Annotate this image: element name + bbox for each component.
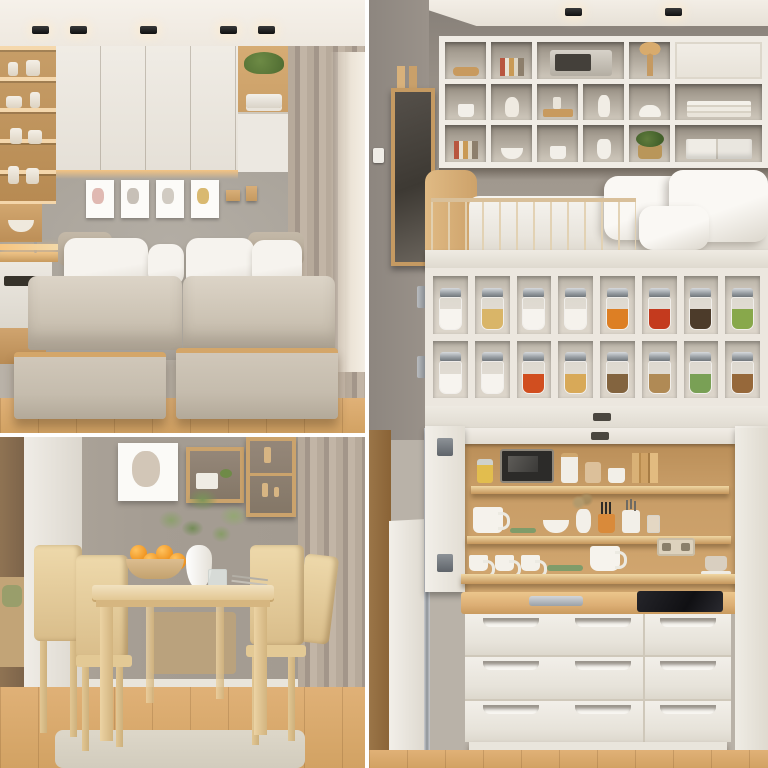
microwave-item [550,50,612,76]
spice-cell [600,276,635,334]
drawer-handle [575,661,631,670]
wood-bowl-item [453,67,479,76]
jar-contents [482,374,503,393]
jar-contents [607,309,628,328]
jar-lid [440,288,461,297]
spice-cell [558,276,593,334]
drawer-column-left [465,614,643,742]
bowl-white-item [501,148,523,159]
jar-lid [690,352,711,361]
spice-cell [475,276,510,334]
open-door-left-lower [389,519,427,768]
photo-kitchen-unit [369,0,768,768]
jar-contents [649,309,670,328]
counter-board [461,574,737,584]
jar-lid [690,288,711,297]
side-wall-wood [369,430,391,768]
cup-and-saucer [705,556,727,571]
drawer-face [465,657,643,698]
spice-jar [522,288,545,330]
folded-towels [246,94,282,108]
cubby-lower-door [238,112,290,172]
shelf-board [471,486,729,494]
ceiling-light [665,8,682,16]
cubby-cell [675,125,762,162]
jar-glass [439,297,462,330]
jar-glass [439,361,462,394]
mug [469,555,488,571]
spice-cell [642,341,677,399]
open-door-right-lower [735,428,768,768]
latch [591,432,609,440]
spice-cell [517,341,552,399]
open-door-left [425,426,465,592]
knife-jar [622,510,640,533]
plant-item [638,145,662,159]
dish-green [510,528,536,533]
pitcher-item [597,139,611,159]
drawer-chest [465,614,731,742]
loft-pillow [639,206,709,250]
jar-glass [689,361,712,394]
jar-glass [606,297,629,330]
counter-items [463,534,653,574]
cubby-cell [675,42,762,79]
loft-railing [431,198,636,252]
latch [593,413,611,421]
jar-contents [649,374,670,393]
cubby-cell [675,84,762,121]
mug-big [473,507,503,533]
photo-bedroom [0,0,365,433]
shelf-figurine [26,60,40,76]
ceiling-light [565,8,582,16]
jar-glass [522,361,545,394]
jar-lid [607,288,628,297]
chair-leg [288,657,295,741]
rack-bottom-band [425,406,768,428]
wall-shelf-box [226,190,240,201]
table-leg [254,607,267,735]
jar-lid [649,352,670,361]
drawer-face [465,614,643,655]
books-item [500,58,524,76]
wall-art-frame [156,180,184,218]
cubby-plant [244,52,284,74]
jar-contents [440,374,461,393]
spice-jar [564,288,587,330]
art-sketch [197,188,209,204]
drawer-face [645,701,731,742]
jar-lid [482,288,503,297]
cubby-shelving [439,36,768,168]
jar-lid [649,288,670,297]
drawer-handle [483,705,539,714]
collage-canvas [0,0,768,768]
door-item [675,42,762,79]
ceiling-light [32,26,49,34]
cubby-cell [491,125,532,162]
jar-glass [648,361,671,394]
green-pillow [2,585,22,607]
mug-print [608,468,625,483]
bedroom-ceiling [0,0,365,48]
spice-jar [731,288,754,330]
jar-contents [523,309,544,328]
art-sketch [162,188,174,204]
jar-glass [689,297,712,330]
spice-cell [558,341,593,399]
spice-jar [689,288,712,330]
jar-lid [732,288,753,297]
table-leg [100,607,113,741]
chair-back [34,545,82,641]
shelf-vase [8,62,18,76]
shelf-vase [10,128,22,144]
table-apron [96,600,270,607]
mattress-right [183,276,335,350]
spice-jar [481,288,504,330]
cube-bowl [8,220,34,232]
power-outlet [657,538,695,556]
induction-cooktop [637,591,723,612]
jar-contents [523,374,544,393]
under-cabinet-light [56,170,238,179]
jar-yellow [477,459,493,483]
chair-leg [116,667,123,747]
bottle [264,447,271,463]
wall-shelf-box [246,186,257,201]
spice-cell [600,341,635,399]
cup-item [458,104,474,117]
spice-jar [606,288,629,330]
metal-tray [529,596,583,606]
wall-art-frame [191,180,219,218]
screen [500,449,554,483]
cubby-cell [445,42,486,79]
jar-lid [482,352,503,361]
cubby-cell [583,84,624,121]
mug [495,555,514,571]
drawer-handle [660,661,716,670]
drawer-handle [483,618,539,627]
shelf-bowl [6,96,22,108]
jar-glass [481,361,504,394]
shelf-items-top [471,446,729,486]
door-hinge [437,438,453,456]
books-item [454,141,478,159]
cubby-cell [629,84,670,121]
ceiling-light [140,26,157,34]
spice-cell [684,276,719,334]
spice-jar [689,352,712,394]
spice-jar [439,352,462,394]
jar-contents [690,309,711,328]
jar-contents [690,374,711,393]
cup-item [550,146,566,159]
cubby-cell [445,84,486,121]
jar-small [647,515,660,533]
boards [632,453,658,483]
cubby-cell [583,125,624,162]
spice-cell [725,341,760,399]
wall-art-frame [86,180,114,218]
cubby-cell [445,125,486,162]
ceiling-light [258,26,275,34]
shelf-candle [30,92,40,108]
jar-glass [564,297,587,330]
cubby-cell [537,125,578,162]
vase-item [598,95,610,117]
kitchenette-counter [0,252,58,262]
jar-glass [481,297,504,330]
spice-cell [433,341,468,399]
jar-glass [648,297,671,330]
shelf-box [28,130,42,144]
rug [55,730,305,768]
spice-cell [642,276,677,334]
spice-cell [684,341,719,399]
table-leg-back [146,607,154,703]
loft-platform [425,250,768,268]
cup-orange [598,514,615,533]
kitchen-floor [369,750,768,768]
shelf-cube [0,204,42,242]
ceiling-light [70,26,87,34]
cubby-cell [491,42,532,79]
cubby-cell [629,42,670,79]
cubby-cell [629,125,670,162]
jar-contents [565,309,586,328]
can-white [561,453,578,483]
counter-items-right [699,534,739,574]
spice-cell [517,276,552,334]
table-top [92,585,274,600]
drawer-face [465,701,643,742]
door-hinge [437,554,453,572]
trundle-drawer-left [14,352,166,419]
shelf-items-middle [467,496,731,536]
jar-lid [565,288,586,297]
jar-lid [523,352,544,361]
mattress-left [28,276,182,350]
shelf-vase [8,166,19,184]
trundle-drawer-right [176,348,338,419]
jar-contents [732,374,753,393]
boards-above-mirror [397,66,419,90]
jar-lid [565,352,586,361]
jar-glass [522,297,545,330]
flower-item [647,50,653,76]
drawer-handle [575,618,631,627]
spice-jar [648,352,671,394]
jar-glass [731,297,754,330]
vase-sprigs [576,509,591,533]
drawer-handle [575,705,631,714]
upper-cabinets [56,46,238,170]
jar-contents [565,374,586,393]
drawer-handle [660,705,716,714]
cabinet-top-underside [465,428,735,444]
spice-jar [648,288,671,330]
jar-contents [482,309,503,328]
cubby-cell [537,42,624,79]
spice-jar [731,352,754,394]
spice-cell [725,276,760,334]
tray-item [543,109,573,117]
plate-green [547,565,583,571]
jar-lid [607,352,628,361]
jar-glass [564,361,587,394]
art-sketch [92,188,104,204]
spice-jar [439,288,462,330]
jar-glass [731,361,754,394]
cubby-cell [537,84,578,121]
table-leg-back [216,607,224,699]
sheer-window-light [330,52,365,372]
ceiling-light [220,26,237,34]
chair-leg [40,641,47,733]
boxes-item [686,139,752,159]
jar-contents [732,309,753,328]
jar-lid [440,352,461,361]
kitchen-ceiling [429,0,768,26]
photo-dining [0,437,365,768]
jar-glass [606,361,629,394]
jar-lid [523,288,544,297]
wall-art-frames [86,180,226,222]
art-sketch [127,188,139,204]
cup-big [590,546,620,571]
wall-art-frame [121,180,149,218]
spice-jar [481,352,504,394]
spice-jar [564,352,587,394]
trays-item [687,101,751,117]
wood-cubby-unit [238,46,290,170]
can-tan [585,462,601,483]
jar-contents [607,374,628,393]
drawer-handle [483,661,539,670]
drawer-face [645,657,731,698]
led-strip [0,244,58,250]
spice-jar [522,352,545,394]
bottle [274,487,279,497]
drawer-face [645,614,731,655]
jar-contents [440,309,461,328]
figurine-item [505,97,519,117]
dome-item [639,105,661,117]
mug [521,555,540,571]
drawer-handle [660,618,716,627]
drawer-column-right [645,614,731,742]
light-switch [373,148,384,163]
spice-cell [475,341,510,399]
chair-leg [82,667,89,751]
shelf-jar [26,168,39,184]
spice-jar [606,352,629,394]
cubby-cell [491,84,532,121]
jar-lid [732,352,753,361]
spice-cell [433,276,468,334]
bowl-white [543,520,569,533]
spice-jar-rack [425,268,768,406]
